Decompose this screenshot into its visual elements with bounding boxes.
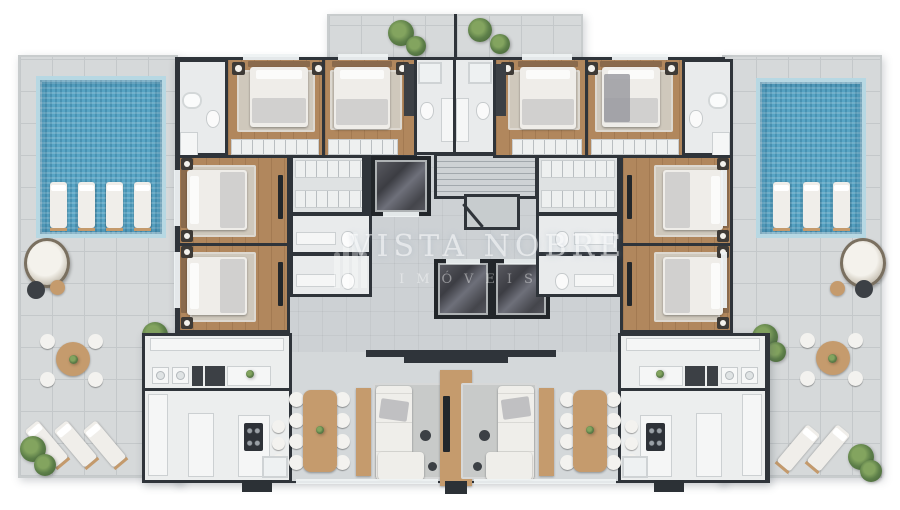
in-pool-lounger (833, 182, 850, 228)
bed (334, 67, 390, 129)
bed (187, 170, 247, 230)
service-door (192, 366, 203, 386)
in-pool-lounger (50, 182, 67, 228)
nightstand (181, 246, 193, 258)
watermark-title: VISTA NOBRE (350, 229, 594, 264)
wall-tv (627, 175, 632, 219)
nightstand (717, 317, 729, 329)
outdoor-chair (800, 333, 815, 348)
service-door (707, 366, 718, 386)
bathtub (708, 92, 728, 109)
dining-chair (289, 392, 304, 407)
sideboard (539, 388, 554, 476)
toilet (476, 102, 490, 120)
wall-tv (278, 175, 283, 219)
bed-throw (604, 74, 630, 122)
bar-stool (625, 420, 638, 433)
closet-shelving (295, 160, 367, 178)
elevator-door (383, 212, 419, 217)
window (612, 54, 668, 60)
sofa-chaise (486, 452, 532, 480)
wall-tv (278, 262, 283, 306)
watermark-logo (343, 232, 349, 288)
in-pool-lounger (134, 182, 151, 228)
kitchen-cabinets (742, 394, 762, 476)
watermark-logo (334, 252, 340, 288)
dining-chair (289, 455, 304, 470)
shower-tray (262, 456, 288, 478)
bar-stool (272, 437, 285, 450)
dining-chair (606, 455, 621, 470)
in-pool-lounger (803, 182, 820, 228)
sofa-throw (379, 398, 410, 422)
outdoor-chair (88, 372, 103, 387)
sofa-throw (501, 396, 532, 420)
bar-stool (625, 437, 638, 450)
bed (663, 257, 723, 315)
wardrobe (512, 139, 582, 155)
plant (860, 460, 882, 482)
table-centerpiece (316, 426, 324, 434)
window (721, 170, 727, 226)
interior-wall (618, 388, 768, 391)
vanity (712, 132, 730, 156)
coffee-table (479, 430, 490, 441)
nightstand (665, 62, 678, 75)
side-table (50, 280, 65, 295)
tall-wardrobe (495, 64, 506, 116)
table-centerpiece (586, 426, 594, 434)
bed (250, 67, 308, 127)
outdoor-chair (800, 371, 815, 386)
cooktop (244, 423, 263, 451)
window (338, 54, 388, 60)
toilet (689, 110, 703, 128)
in-pool-lounger (773, 182, 790, 228)
toilet (206, 110, 220, 128)
plant (34, 454, 56, 476)
in-pool-lounger (78, 182, 95, 228)
nightstand (717, 158, 729, 170)
kitchen-island (188, 413, 214, 477)
floor-lamp (473, 462, 482, 471)
washing-machine (741, 367, 758, 384)
bed (187, 257, 247, 315)
closet-shelving (541, 190, 615, 208)
nightstand (232, 62, 245, 75)
shower (468, 62, 492, 84)
dining-chair (335, 413, 350, 428)
nightstand (181, 230, 193, 242)
vanity (180, 132, 198, 156)
outdoor-chair (88, 334, 103, 349)
vanity (574, 274, 614, 287)
dining-chair (335, 392, 350, 407)
floor-lamp (428, 462, 437, 471)
tv-screen (443, 396, 450, 452)
outdoor-chair (40, 372, 55, 387)
nightstand (717, 230, 729, 242)
elevator (371, 156, 431, 216)
toilet (420, 102, 434, 120)
bathtub (182, 92, 202, 109)
cooktop (646, 423, 665, 451)
vanity (296, 232, 336, 245)
washing-machine (172, 367, 189, 384)
closet-shelving (541, 160, 615, 178)
washing-machine (721, 367, 738, 384)
service-counter (626, 338, 760, 351)
hanging-egg-chair (24, 238, 70, 288)
window (174, 252, 180, 308)
balcony-divider-wall (454, 14, 457, 60)
window (243, 54, 299, 60)
shower (418, 62, 442, 84)
dining-chair (606, 434, 621, 449)
dining-chair (335, 434, 350, 449)
wardrobe (591, 139, 679, 155)
wall-tv (627, 262, 632, 306)
plant (406, 36, 426, 56)
floor-plan-render: VISTA NOBRE IMÓVEIS (0, 0, 900, 510)
plant (490, 34, 510, 54)
outdoor-chair (848, 371, 863, 386)
table-centerpiece (69, 355, 78, 364)
dining-chair (289, 413, 304, 428)
kitchen-cabinets (148, 394, 168, 476)
table-centerpiece (828, 354, 837, 363)
side-table (855, 280, 873, 298)
kitchen-island (696, 413, 722, 477)
vanity (456, 98, 469, 142)
window (522, 54, 572, 60)
dining-chair (289, 434, 304, 449)
wardrobe (328, 139, 398, 155)
service-counter (150, 338, 284, 351)
closet-shelving (295, 190, 367, 208)
wardrobe (231, 139, 319, 155)
window (721, 252, 727, 308)
sliding-glass-door (474, 479, 616, 484)
dining-chair (606, 413, 621, 428)
utility-cabinet (205, 366, 225, 386)
balcony-pier (654, 480, 684, 492)
washing-machine (152, 367, 169, 384)
coffee-table (420, 430, 431, 441)
bed (663, 170, 723, 230)
interior-wall (142, 388, 292, 391)
dining-chair (606, 392, 621, 407)
gallery-wall-thick (404, 350, 508, 363)
elevator (434, 259, 492, 319)
side-table (830, 281, 845, 296)
sliding-glass-door (296, 479, 438, 484)
side-table (27, 281, 45, 299)
balcony-pier (445, 481, 467, 494)
window (174, 170, 180, 226)
utility-cabinet (685, 366, 705, 386)
sideboard (356, 388, 371, 476)
balcony-pier (242, 480, 272, 492)
in-pool-lounger (106, 182, 123, 228)
outdoor-chair (40, 334, 55, 349)
vanity (296, 274, 336, 287)
outdoor-chair (848, 333, 863, 348)
dining-chair (335, 455, 350, 470)
bar-stool (272, 420, 285, 433)
counter-plant (246, 370, 254, 378)
sofa-chaise (378, 452, 424, 480)
bed (520, 67, 576, 129)
staircase (434, 153, 538, 199)
nightstand (181, 158, 193, 170)
watermark-subtitle: IMÓVEIS (368, 272, 576, 287)
counter-plant (656, 370, 664, 378)
nightstand (181, 317, 193, 329)
shower-tray (622, 456, 648, 478)
plant (468, 18, 492, 42)
